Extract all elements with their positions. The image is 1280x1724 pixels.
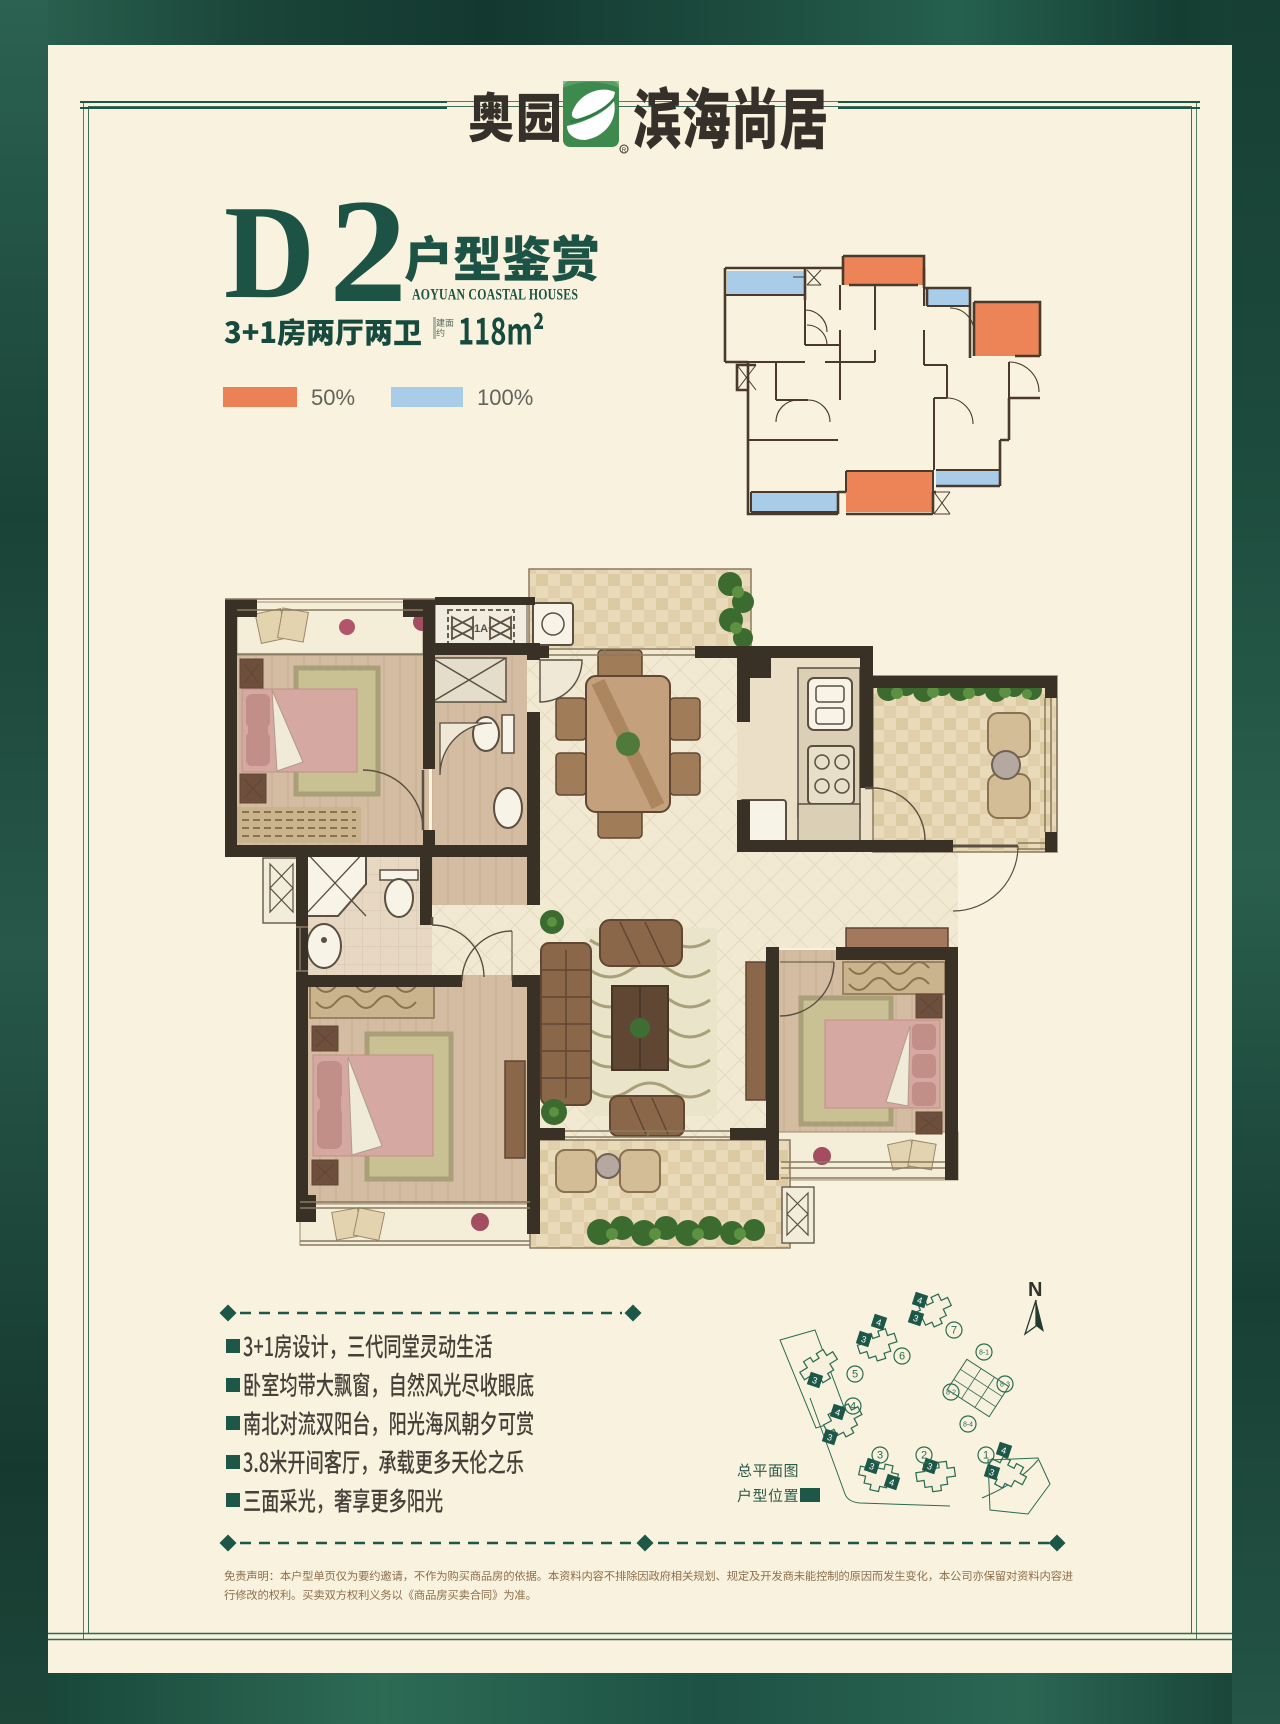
svg-text:AOYUAN COASTAL HOUSES: AOYUAN COASTAL HOUSES	[412, 286, 578, 304]
svg-text:R: R	[622, 148, 627, 154]
svg-text:N: N	[1028, 1279, 1042, 1301]
svg-text:2: 2	[329, 180, 407, 334]
svg-text:50%: 50%	[311, 385, 355, 410]
svg-text:1A: 1A	[474, 623, 488, 635]
svg-text:100%: 100%	[477, 385, 533, 410]
svg-text:D: D	[224, 180, 315, 327]
